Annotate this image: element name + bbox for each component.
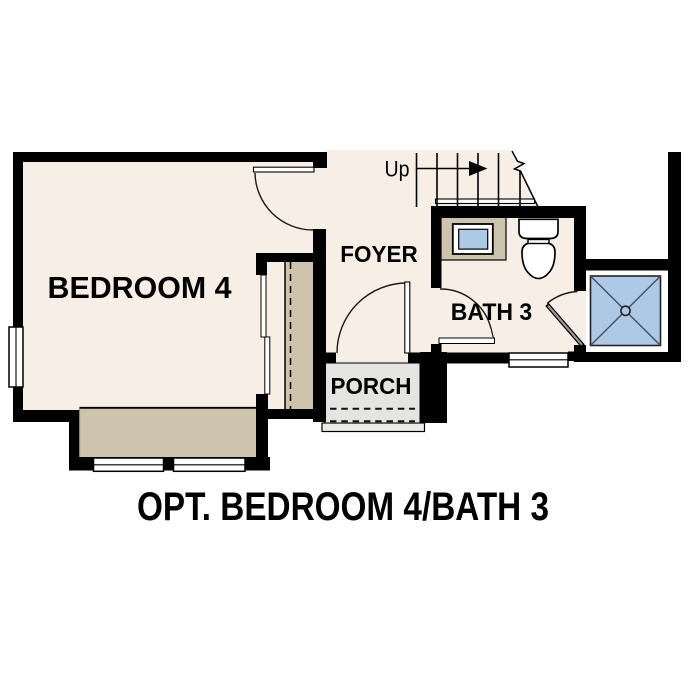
svg-text:OPT. BEDROOM 4/BATH 3: OPT. BEDROOM 4/BATH 3 xyxy=(137,485,549,529)
svg-text:PORCH: PORCH xyxy=(331,373,412,399)
svg-text:FOYER: FOYER xyxy=(340,241,418,267)
svg-text:BEDROOM 4: BEDROOM 4 xyxy=(48,270,233,305)
svg-text:BATH 3: BATH 3 xyxy=(451,299,533,326)
svg-text:Up: Up xyxy=(385,157,410,182)
